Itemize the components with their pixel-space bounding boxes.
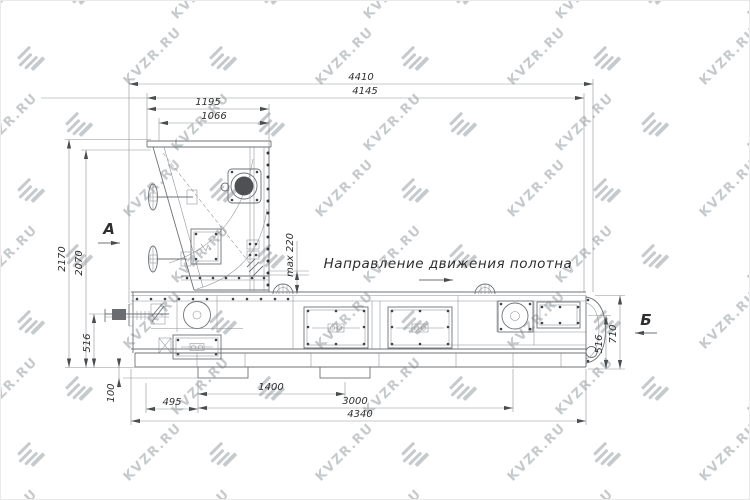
- dim-2070: 2070: [74, 250, 85, 275]
- dim-4340: 4340: [347, 409, 372, 420]
- dome-guard: [273, 284, 293, 294]
- drive-access-panel: [159, 335, 221, 359]
- dim-516-left: 516: [82, 333, 93, 352]
- handwheel-lower: [149, 246, 192, 272]
- inspection-hatch: [304, 307, 368, 348]
- dome-guard: [475, 284, 495, 294]
- handwheel-upper: [149, 184, 198, 210]
- dim-516-right: 516: [594, 334, 605, 353]
- dim-1400: 1400: [258, 382, 283, 393]
- direction-of-motion-label: Направление движения полотна: [324, 256, 573, 272]
- dim-710: 710: [608, 324, 619, 343]
- dim-100: 100: [106, 383, 117, 402]
- dim-2170: 2170: [57, 246, 68, 271]
- right-panel: [537, 302, 580, 328]
- dim-3000: 3000: [342, 396, 367, 407]
- drawing-sheet: KVZR.RUKVZR.RUKVZR.RUKVZR.RUKVZR.RUKVZR.…: [0, 0, 750, 500]
- annotations: А Б Направление движения полотна: [98, 220, 657, 333]
- dim-495: 495: [162, 397, 181, 408]
- dim-1195: 1195: [195, 97, 220, 108]
- base-frame: [135, 353, 586, 378]
- machine-technical-drawing: 4410 4145 1195 1066 2170 2070 516 100 ma…: [1, 1, 750, 500]
- conveyor-body: [105, 284, 606, 378]
- dimensions: 4410 4145 1195 1066 2170 2070 516 100 ma…: [41, 72, 625, 425]
- right-bearing-housing: [498, 301, 533, 332]
- motor: [221, 169, 261, 203]
- dim-4145: 4145: [352, 86, 377, 97]
- inspection-hatch: [388, 307, 452, 348]
- belt-tensioner: [105, 309, 169, 322]
- view-label-a: А: [102, 220, 115, 238]
- view-label-b: Б: [640, 311, 651, 329]
- hopper-access-panel: [191, 229, 221, 264]
- dim-4410: 4410: [348, 72, 373, 83]
- dim-max-220: max 220: [285, 233, 296, 277]
- dim-1066: 1066: [201, 111, 226, 122]
